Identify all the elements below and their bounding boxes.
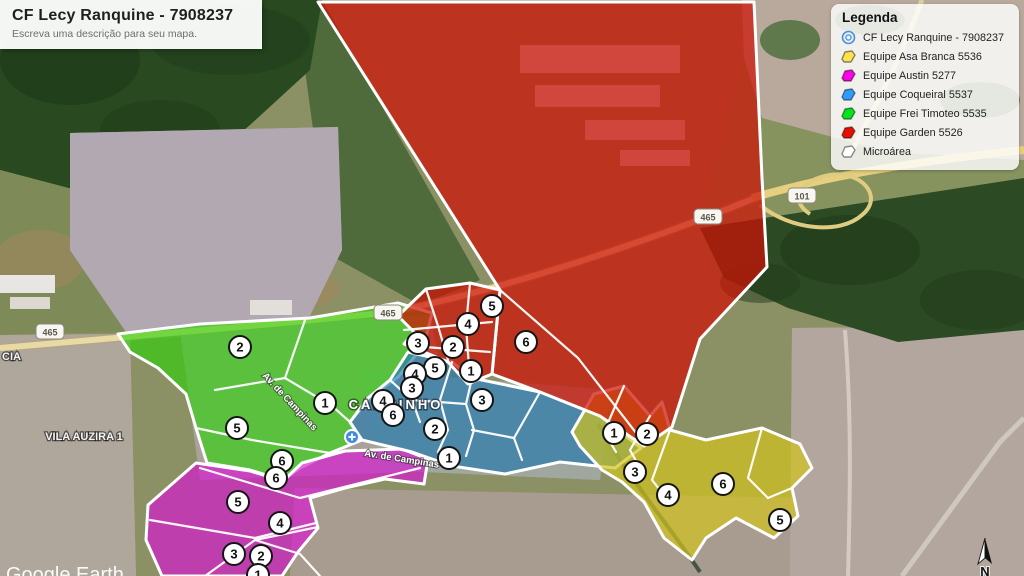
legend-label: Equipe Austin 5277	[863, 70, 956, 82]
health-facility-marker[interactable]	[344, 429, 360, 445]
microarea-marker: 4	[657, 484, 679, 506]
microarea-marker: 2	[229, 336, 251, 358]
microarea-marker: 1	[247, 564, 269, 576]
legend-label: Equipe Asa Branca 5536	[863, 51, 982, 63]
marker-number: 2	[431, 422, 438, 437]
marker-number: 2	[236, 340, 243, 355]
microarea-marker: 5	[226, 417, 248, 439]
shield-number: 465	[700, 213, 715, 223]
microarea-marker: 2	[424, 418, 446, 440]
microarea-marker: 6	[515, 331, 537, 353]
polygon-swatch-icon	[840, 86, 857, 103]
polygon-swatch-icon	[840, 67, 857, 84]
microarea-marker: 2	[636, 423, 658, 445]
marker-number: 1	[610, 426, 617, 441]
road-shield: 101	[788, 188, 816, 203]
place-label-cia: CIA	[2, 351, 21, 363]
map-description: Escreva uma descrição para seu mapa.	[12, 28, 250, 40]
microarea-marker: 5	[769, 509, 791, 531]
marker-number: 3	[414, 336, 421, 351]
legend-label: Microárea	[863, 146, 911, 158]
legend-panel: Legenda CF Lecy Ranquine - 7908237 Equip…	[831, 4, 1019, 170]
marker-number: 4	[464, 317, 472, 332]
legend-item-garden[interactable]: Equipe Garden 5526	[840, 124, 1010, 141]
marker-number: 2	[449, 340, 456, 355]
marker-number: 6	[272, 471, 279, 486]
microarea-marker: 4	[269, 512, 291, 534]
microarea-marker: 1	[438, 447, 460, 469]
road-shield: 465	[36, 324, 64, 339]
legend-item-asa-branca[interactable]: Equipe Asa Branca 5536	[840, 48, 1010, 65]
microarea-marker: 5	[481, 295, 503, 317]
marker-number: 2	[643, 427, 650, 442]
marker-number: 5	[234, 495, 241, 510]
microarea-marker: 6	[712, 473, 734, 495]
shield-number: 465	[380, 309, 395, 319]
microarea-marker: 3	[471, 389, 493, 411]
map-title-card: CF Lecy Ranquine - 7908237 Escreva uma d…	[0, 0, 262, 49]
marker-number: 6	[719, 477, 726, 492]
marker-number: 3	[230, 547, 237, 562]
shield-number: 465	[42, 328, 57, 338]
marker-number: 4	[276, 516, 284, 531]
urban-right-bottom	[790, 326, 1024, 576]
marker-number: 1	[321, 396, 328, 411]
legend-label: Equipe Coqueiral 5537	[863, 89, 973, 101]
microarea-marker: 4	[457, 313, 479, 335]
legend-label: CF Lecy Ranquine - 7908237	[863, 32, 1004, 44]
marker-number: 1	[254, 568, 261, 576]
polygon-swatch-icon	[840, 124, 857, 141]
microarea-marker: 5	[424, 357, 446, 379]
map-title: CF Lecy Ranquine - 7908237	[12, 7, 250, 25]
warehouse-roof	[0, 275, 55, 293]
polygon-swatch-icon	[840, 48, 857, 65]
warehouse-roof	[250, 300, 292, 315]
shield-number: 101	[794, 192, 809, 202]
legend-label: Equipe Garden 5526	[863, 127, 963, 139]
legend-item-microarea[interactable]: Microárea	[840, 143, 1010, 160]
marker-number: 3	[478, 393, 485, 408]
marker-number: 1	[445, 451, 452, 466]
marker-number: 3	[408, 381, 415, 396]
marker-number: 5	[776, 513, 783, 528]
microarea-marker: 1	[314, 392, 336, 414]
road-shield: 465	[694, 209, 722, 224]
marker-number: 6	[278, 454, 285, 469]
polygon-swatch-icon	[840, 105, 857, 122]
marker-number: 4	[664, 488, 672, 503]
microarea-marker: 3	[624, 461, 646, 483]
legend-item-austin[interactable]: Equipe Austin 5277	[840, 67, 1010, 84]
polygon-swatch-icon	[840, 143, 857, 160]
marker-number: 5	[233, 421, 240, 436]
legend-label: Equipe Frei Timoteo 5535	[863, 108, 987, 120]
legend-item-cf-lecy[interactable]: CF Lecy Ranquine - 7908237	[840, 29, 1010, 46]
vegetation-blob	[760, 20, 820, 60]
microarea-marker: 1	[603, 422, 625, 444]
marker-number: 5	[488, 299, 495, 314]
marker-number: 6	[389, 408, 396, 423]
urban-left	[70, 127, 342, 332]
road-shield: 465	[374, 305, 402, 320]
microarea-marker: 6	[382, 404, 404, 426]
microarea-marker: 3	[223, 543, 245, 565]
google-earth-viewport: CIA VILA AUZIRA 1 CAMPINHO Av. de Campin…	[0, 0, 1024, 576]
urban-left-bottom	[0, 334, 136, 576]
microarea-marker: 1	[460, 360, 482, 382]
microarea-marker: 5	[227, 491, 249, 513]
microarea-marker: 3	[401, 377, 423, 399]
marker-number: 6	[522, 335, 529, 350]
google-earth-watermark: Google Earth	[6, 564, 124, 576]
marker-number: 3	[631, 465, 638, 480]
legend-item-coqueiral[interactable]: Equipe Coqueiral 5537	[840, 86, 1010, 103]
marker-number: 2	[257, 549, 264, 564]
legend-title: Legenda	[842, 10, 1010, 25]
legend-item-frei-timoteo[interactable]: Equipe Frei Timoteo 5535	[840, 105, 1010, 122]
warehouse-roof	[10, 297, 50, 309]
place-label-vila-auzira: VILA AUZIRA 1	[45, 431, 123, 443]
health-facility-icon	[840, 29, 857, 46]
microarea-marker: 2	[442, 336, 464, 358]
microarea-marker: 3	[407, 332, 429, 354]
marker-number: 5	[431, 361, 438, 376]
marker-number: 1	[467, 364, 474, 379]
microarea-marker: 6	[265, 467, 287, 489]
compass-n-label: N	[980, 564, 989, 576]
